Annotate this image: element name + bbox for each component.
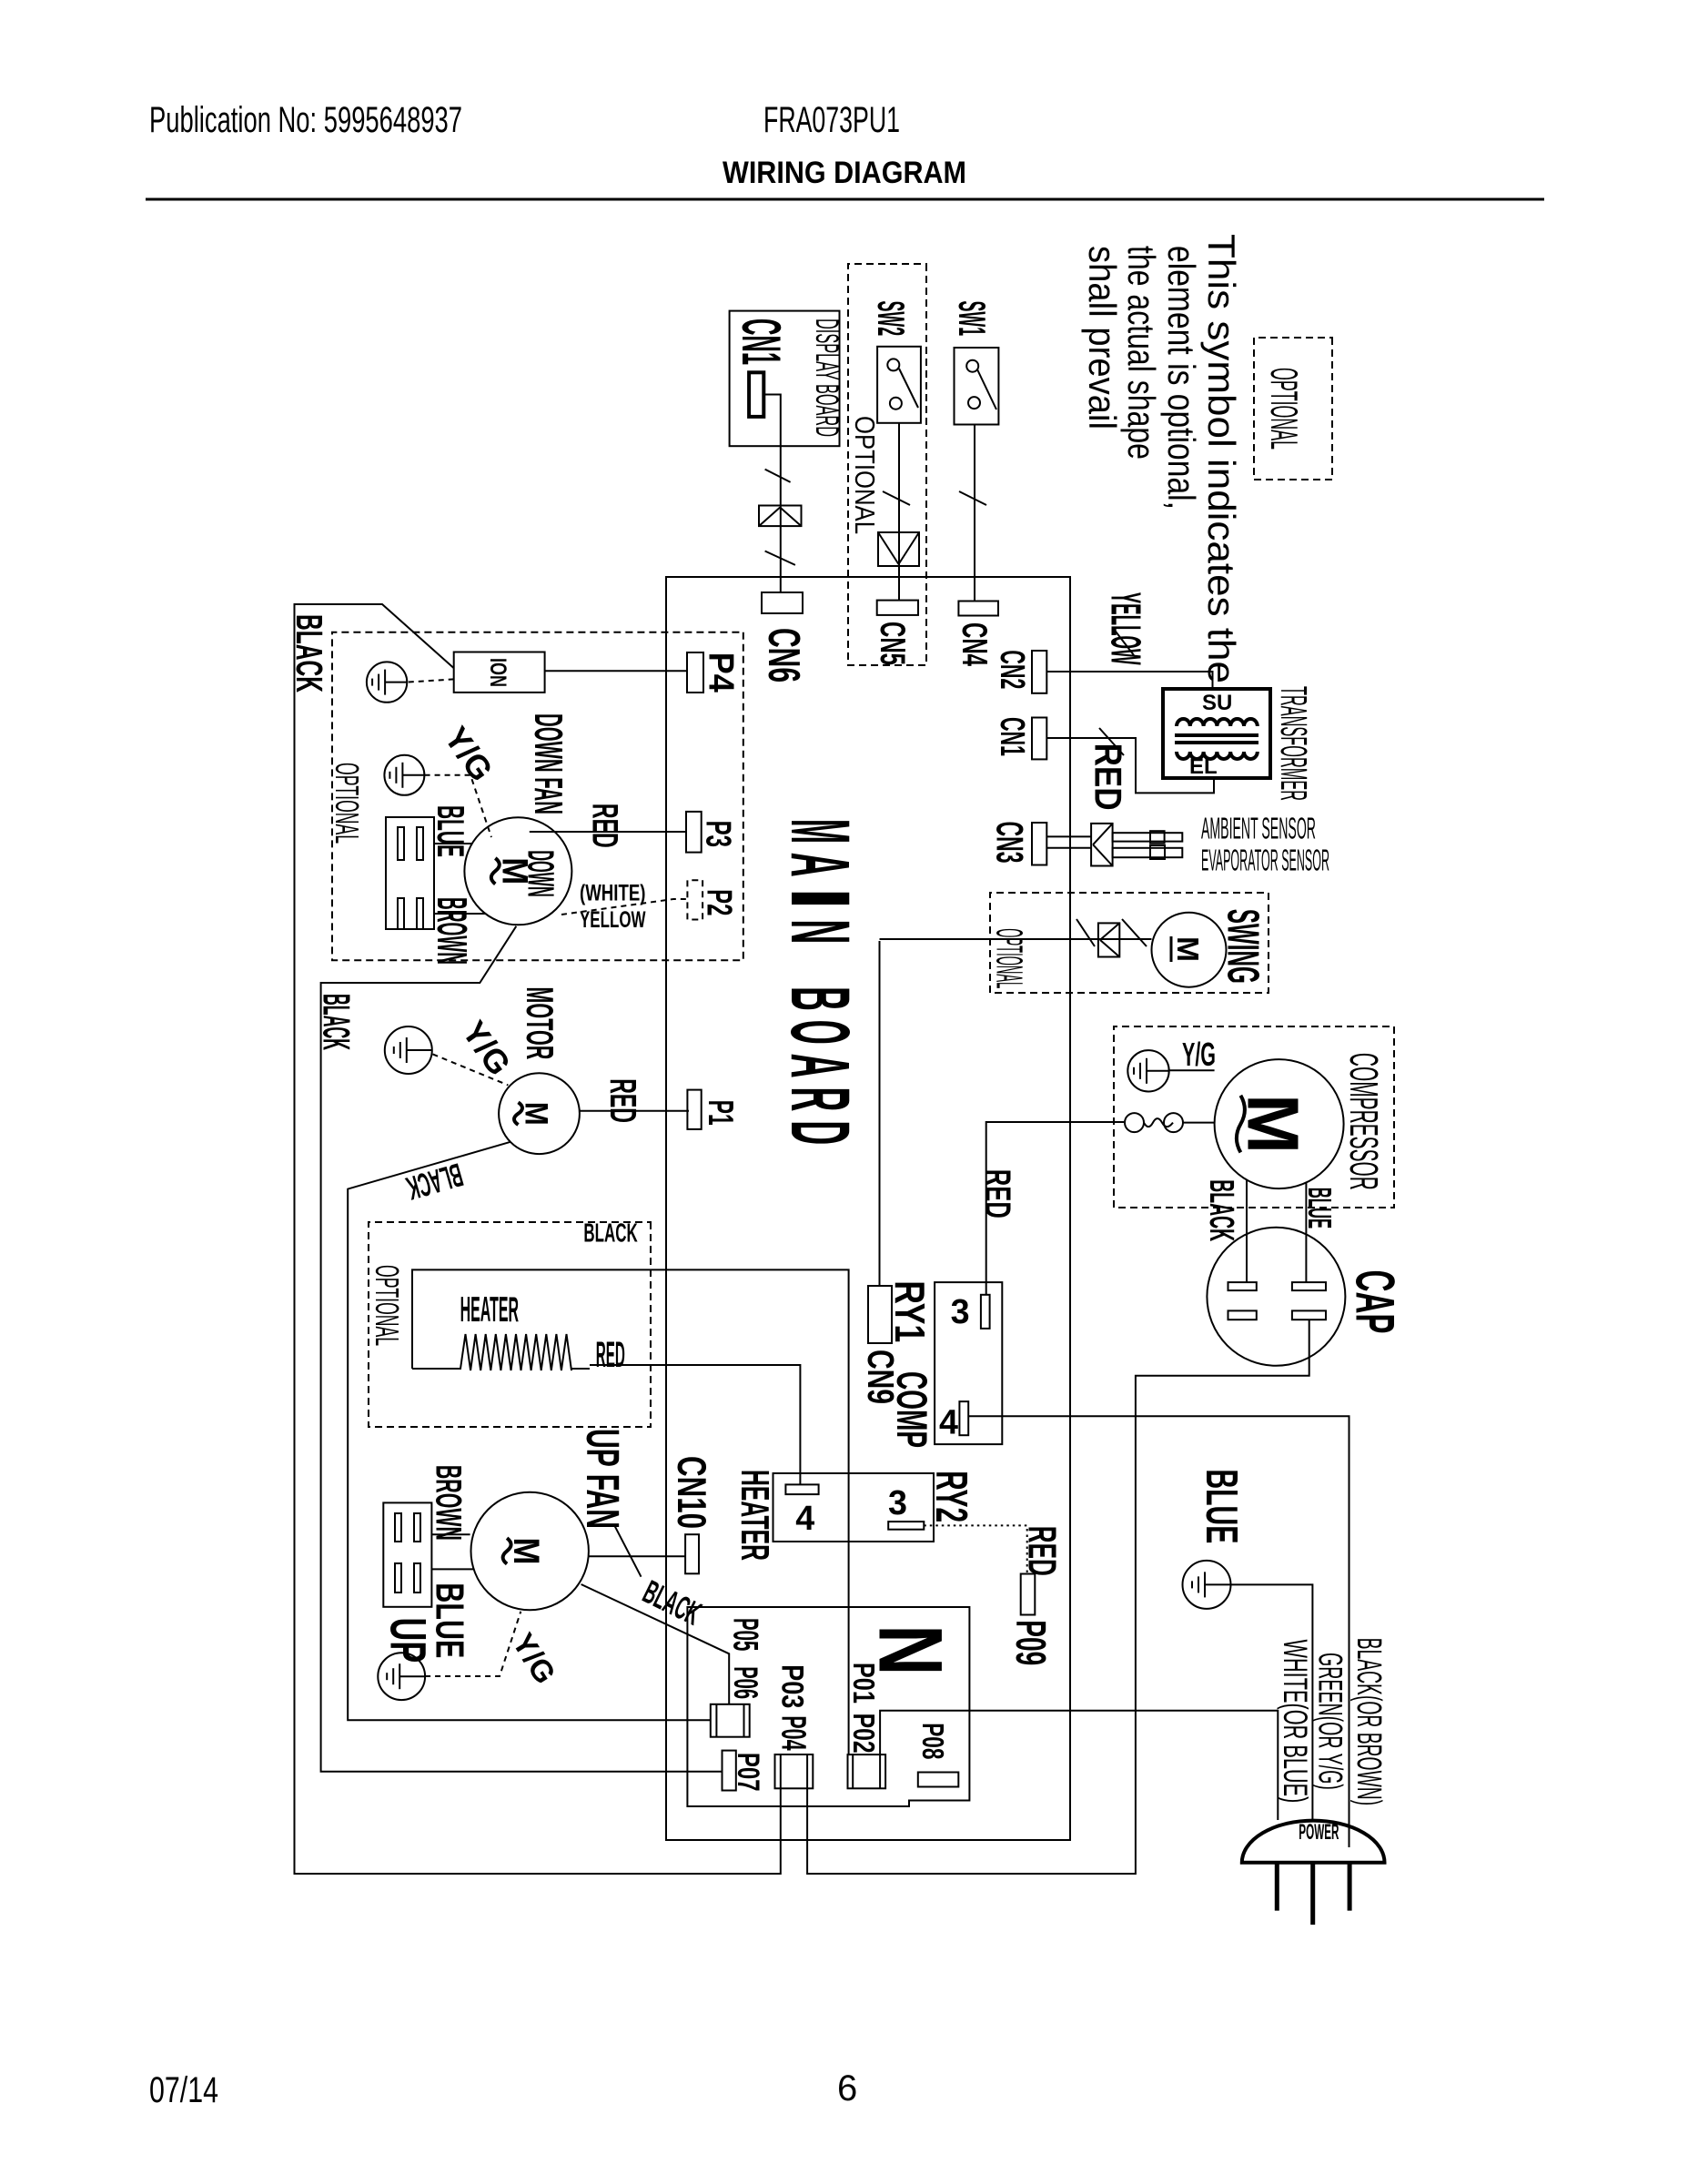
svg-text:R: R	[773, 1087, 866, 1111]
svg-text:COMPRESSOR: COMPRESSOR	[1341, 1053, 1385, 1190]
svg-text:CN10: CN10	[669, 1456, 713, 1529]
svg-text:P03: P03	[774, 1664, 809, 1708]
svg-text:YELLOW: YELLOW	[1102, 592, 1149, 665]
svg-text:Publication No: 5995648937: Publication No: 5995648937	[149, 100, 462, 140]
svg-text:B: B	[773, 986, 866, 1011]
svg-text:CN4: CN4	[955, 622, 994, 666]
svg-text:3: 3	[951, 1292, 970, 1330]
svg-text:P05: P05	[725, 1618, 764, 1651]
svg-text:O: O	[773, 1020, 866, 1045]
svg-text:BLACK: BLACK	[288, 614, 330, 693]
svg-text:RED: RED	[602, 1078, 644, 1123]
svg-text:DOWN: DOWN	[520, 850, 561, 897]
svg-text:BLACK(OR BROWN): BLACK(OR BROWN)	[1349, 1638, 1388, 1806]
svg-text:BLUE: BLUE	[1197, 1469, 1246, 1543]
svg-text:WIRING DIAGRAM: WIRING DIAGRAM	[723, 156, 966, 190]
svg-text:RED: RED	[596, 1335, 625, 1375]
svg-text:A: A	[773, 853, 866, 877]
svg-text:OPTIONAL: OPTIONAL	[989, 928, 1031, 988]
svg-text:3: 3	[888, 1483, 907, 1522]
svg-text:SWING: SWING	[1218, 909, 1268, 984]
svg-text:P01: P01	[846, 1663, 880, 1704]
svg-text:MOTOR: MOTOR	[519, 986, 561, 1059]
svg-text:BLACK: BLACK	[316, 994, 358, 1050]
svg-text:RED: RED	[1020, 1526, 1064, 1576]
svg-text:BLUE: BLUE	[1301, 1188, 1338, 1229]
svg-text:COMP: COMP	[887, 1371, 935, 1448]
svg-text:ION: ION	[485, 658, 510, 687]
svg-text:P1: P1	[701, 1100, 740, 1126]
svg-text:RED: RED	[1087, 743, 1130, 811]
svg-text:EVAPORATOR SENSOR: EVAPORATOR SENSOR	[1201, 844, 1329, 878]
svg-text:07/14: 07/14	[149, 2070, 218, 2110]
svg-text:D: D	[773, 1120, 866, 1145]
svg-text:4: 4	[795, 1499, 814, 1537]
svg-text:RED: RED	[977, 1169, 1017, 1218]
svg-text:CN1: CN1	[731, 318, 792, 365]
svg-text:Y/G: Y/G	[1182, 1036, 1216, 1073]
svg-text:P4: P4	[702, 652, 741, 693]
svg-text:CN3: CN3	[989, 822, 1032, 864]
svg-text:P07: P07	[731, 1753, 765, 1792]
svg-text:6: 6	[837, 2068, 857, 2108]
svg-text:CAP: CAP	[1344, 1270, 1405, 1334]
svg-text:AMBIENT SENSOR: AMBIENT SENSOR	[1201, 813, 1316, 846]
svg-text:4: 4	[939, 1402, 958, 1441]
svg-text:BROWN: BROWN	[429, 897, 476, 965]
svg-text:UP FAN: UP FAN	[577, 1429, 630, 1529]
svg-text:P02: P02	[846, 1714, 880, 1754]
svg-text:POWER: POWER	[1299, 1820, 1339, 1845]
svg-text:DISPLAY BOARD: DISPLAY BOARD	[809, 318, 844, 437]
svg-text:I: I	[773, 887, 866, 910]
svg-text:RY1: RY1	[886, 1280, 934, 1342]
svg-text:P04: P04	[773, 1715, 812, 1750]
svg-text:the actual shape: the actual shape	[1120, 246, 1163, 460]
svg-text:OPTIONAL: OPTIONAL	[369, 1265, 406, 1346]
svg-text:P3: P3	[698, 821, 737, 847]
svg-text:OPTIONAL: OPTIONAL	[329, 763, 366, 844]
svg-text:EL: EL	[1189, 754, 1218, 779]
svg-text:P09: P09	[1007, 1620, 1055, 1665]
svg-text:shall prevail: shall prevail	[1081, 246, 1124, 430]
svg-text:CN5: CN5	[873, 622, 912, 665]
svg-text:element is optional,: element is optional,	[1160, 246, 1203, 510]
svg-text:BROWN: BROWN	[428, 1465, 468, 1541]
svg-text:P06: P06	[727, 1666, 764, 1699]
svg-text:YELLOW: YELLOW	[580, 907, 646, 933]
svg-text:P2: P2	[700, 889, 739, 915]
svg-text:RED: RED	[585, 804, 625, 848]
svg-text:HEATER: HEATER	[733, 1470, 776, 1561]
svg-text:A: A	[773, 1054, 866, 1078]
svg-text:BLACK: BLACK	[583, 1218, 637, 1248]
svg-text:TRANSFORMER: TRANSFORMER	[1273, 686, 1315, 801]
svg-text:WHITE(OR BLUE): WHITE(OR BLUE)	[1277, 1640, 1314, 1804]
svg-text:FRA073PU1: FRA073PU1	[763, 100, 900, 140]
svg-text:(WHITE): (WHITE)	[580, 881, 646, 906]
svg-text:BLUE: BLUE	[430, 805, 472, 857]
svg-text:M: M	[1170, 936, 1204, 962]
svg-text:SW1: SW1	[951, 301, 994, 337]
svg-text:BLACK: BLACK	[1203, 1179, 1241, 1241]
svg-text:GREEN(OR Y/G): GREEN(OR Y/G)	[1312, 1653, 1349, 1790]
svg-text:P08: P08	[915, 1723, 949, 1759]
svg-text:DOWN FAN: DOWN FAN	[526, 713, 570, 814]
svg-text:OPTIONAL: OPTIONAL	[1263, 368, 1306, 450]
svg-text:CN1: CN1	[994, 717, 1032, 756]
svg-text:M: M	[519, 1102, 554, 1126]
svg-text:This symbol indicates the: This symbol indicates the	[1200, 234, 1243, 683]
svg-text:M: M	[773, 819, 866, 844]
svg-text:SW2: SW2	[870, 301, 913, 337]
svg-text:N: N	[773, 919, 866, 944]
svg-text:CN6: CN6	[759, 628, 808, 682]
svg-text:HEATER: HEATER	[460, 1290, 520, 1330]
svg-text:CN2: CN2	[994, 650, 1032, 689]
svg-text:SU: SU	[1202, 691, 1232, 715]
svg-text:OPTIONAL: OPTIONAL	[849, 416, 881, 534]
